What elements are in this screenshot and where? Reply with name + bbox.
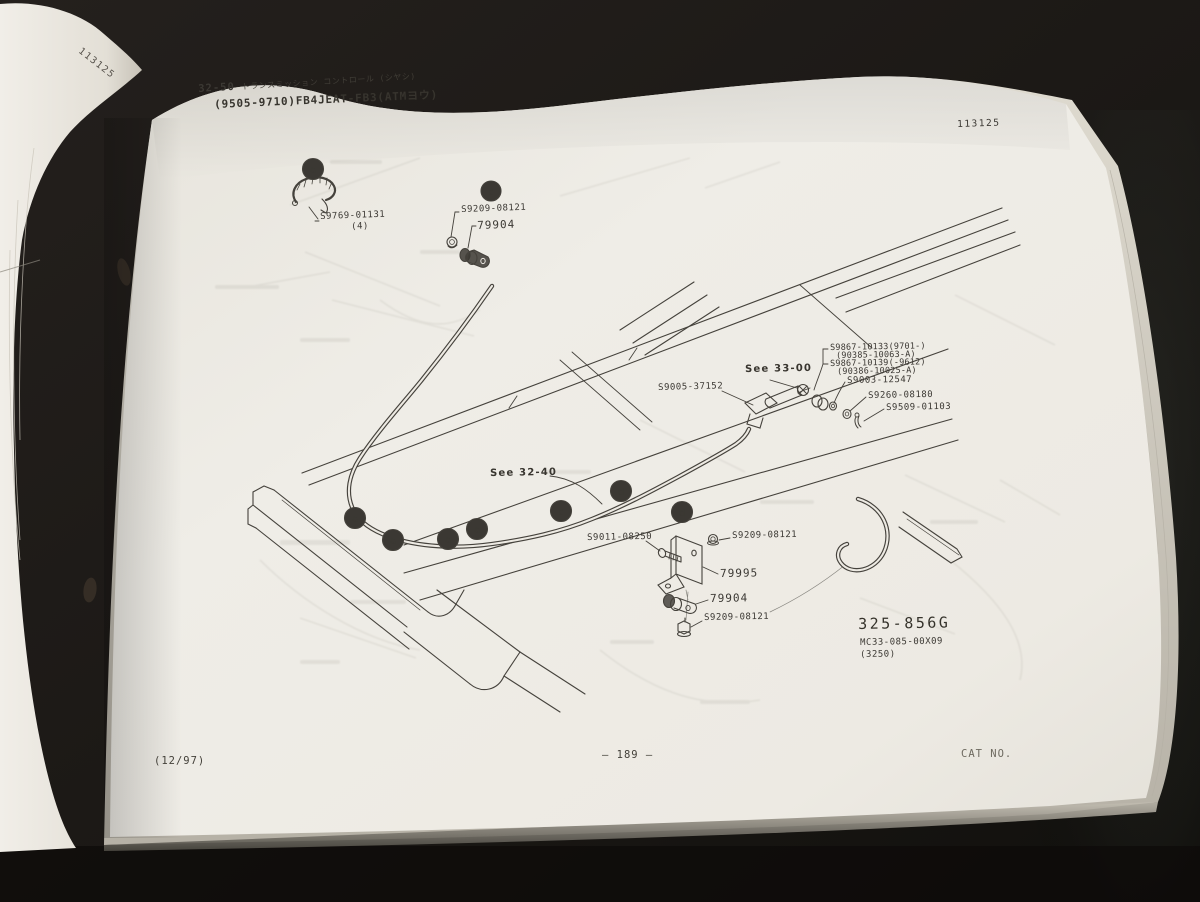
marker-c5: c xyxy=(558,507,564,518)
footer-page-number: — 189 — xyxy=(602,750,653,761)
callout-d-nut-lower: S9209-08121 xyxy=(704,613,769,623)
parts-catalog-photo: 113125 xyxy=(0,0,1200,902)
marker-a3: a xyxy=(445,535,451,546)
marker-a2: a xyxy=(390,536,396,547)
table-bottom xyxy=(0,846,1200,902)
callout-cable: S9005-37152 xyxy=(658,382,723,393)
footer-cat-no: CAT NO. xyxy=(961,749,1012,760)
marker-d7: d xyxy=(679,508,685,519)
callout-bolt: S9011-08250 xyxy=(587,533,652,543)
callout-washer: S9003-12547 xyxy=(847,376,912,386)
callout-c-clamp: 79904 xyxy=(477,219,515,231)
figure-drawing-no: MC33-085-00X09 xyxy=(860,638,943,648)
callout-d-clamp: 79904 xyxy=(710,592,748,604)
marker-detail-c: c xyxy=(488,187,494,198)
section-code: 32-50 xyxy=(198,82,235,95)
marker-detail-a: a xyxy=(310,165,316,176)
main-page xyxy=(110,76,1161,837)
callout-pin: S9509-01103 xyxy=(886,403,951,413)
callout-d-nut-upper: S9209-08121 xyxy=(732,531,797,541)
callout-see-33-00: See 33-00 xyxy=(745,364,812,375)
marker-a4: a xyxy=(474,525,480,536)
page-code-top-right: 113125 xyxy=(957,118,1001,129)
marker-d6: d xyxy=(618,487,624,498)
figure-note: (3250) xyxy=(860,650,896,660)
callout-clip-qty: (4) xyxy=(351,222,369,232)
marker-a1: a xyxy=(352,514,358,525)
callout-see-32-40: See 32-40 xyxy=(490,468,557,479)
footer-issue-date: (12/97) xyxy=(154,756,205,767)
gutter-shadow xyxy=(104,118,182,838)
callout-bracket: 79995 xyxy=(720,567,758,579)
figure-code: 325-856G xyxy=(858,615,950,632)
callout-spacer: S9260-08180 xyxy=(868,391,933,401)
